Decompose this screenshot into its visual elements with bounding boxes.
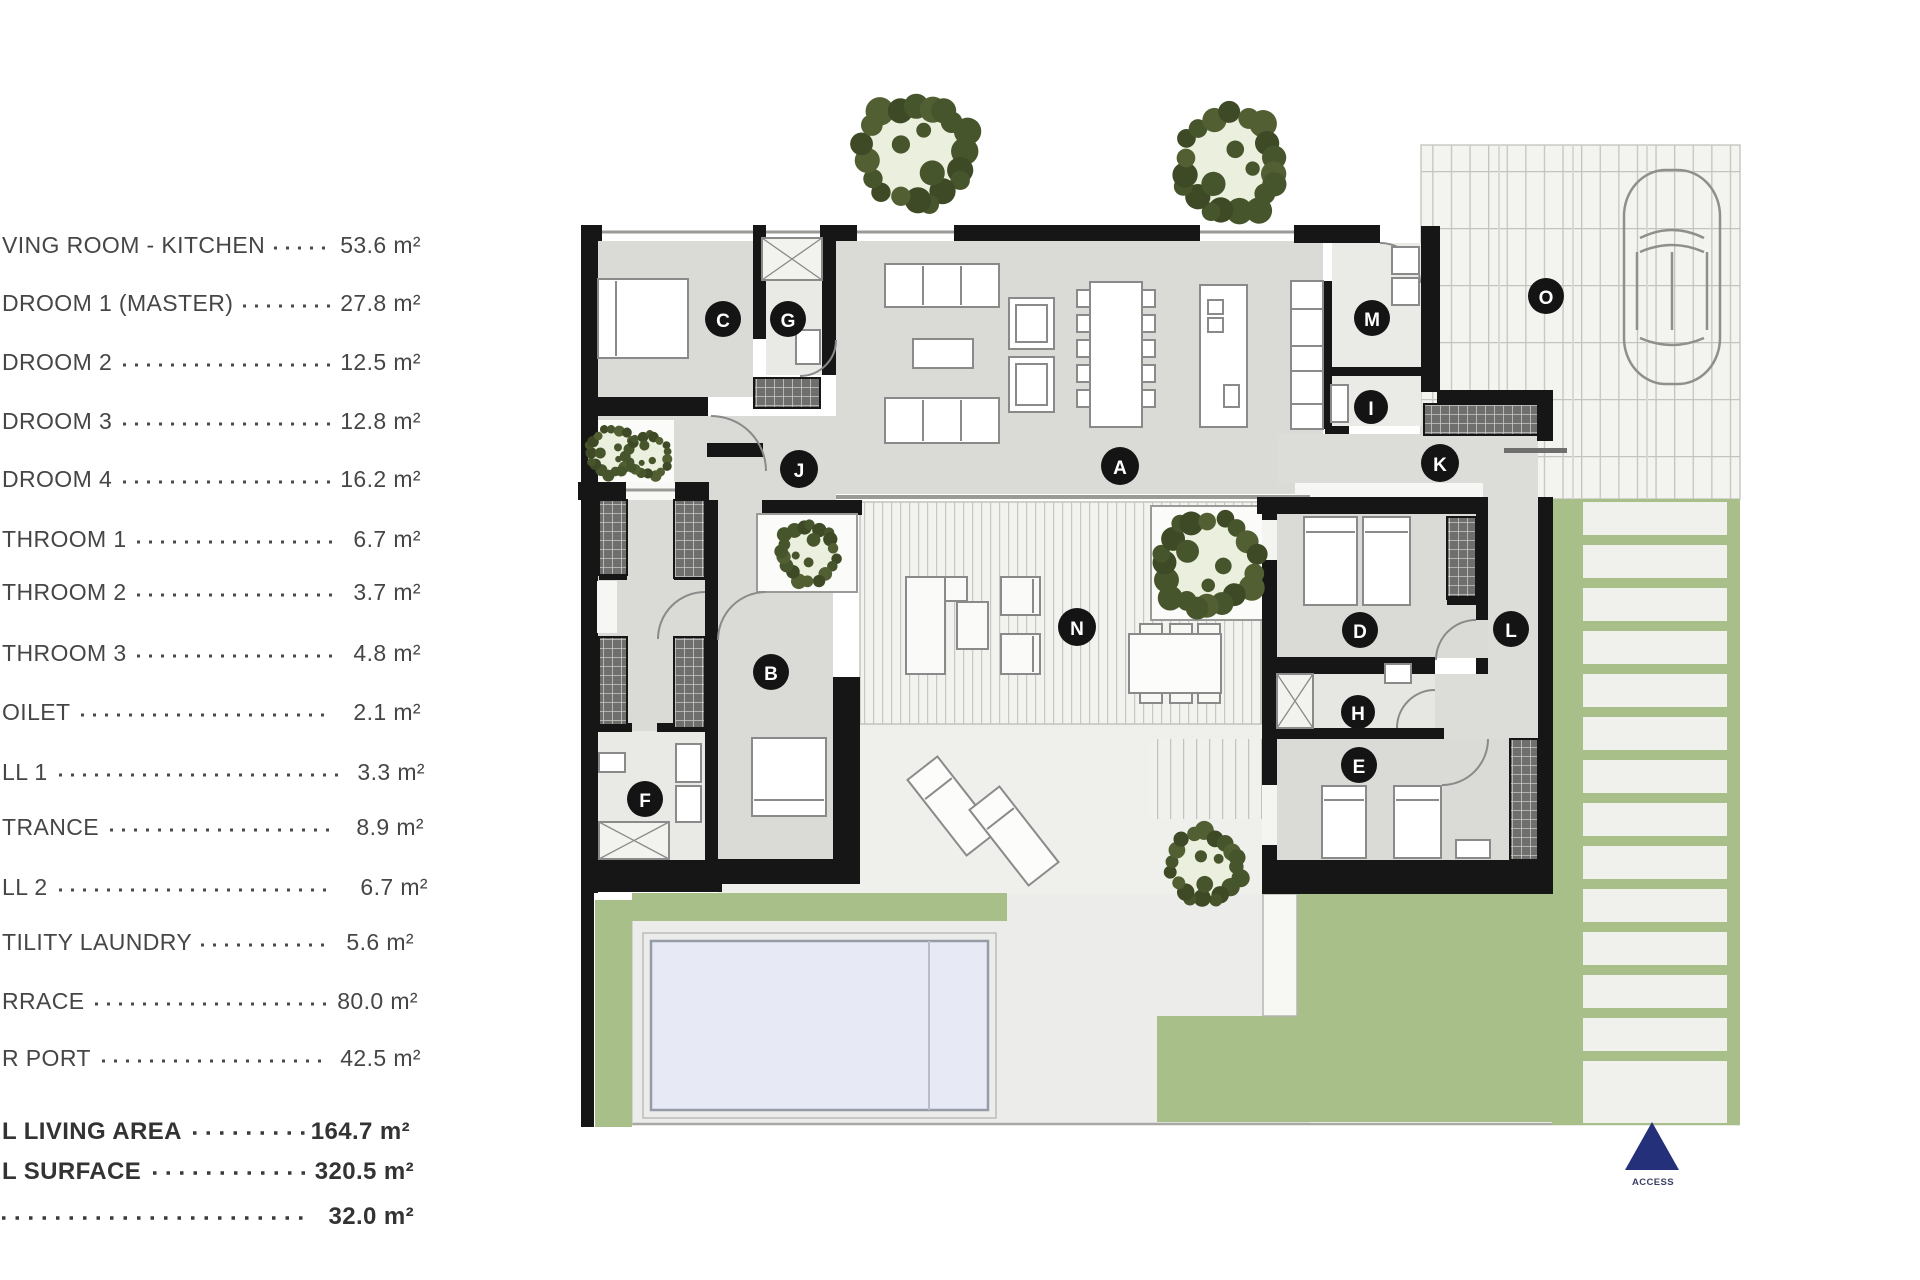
- svg-text:J: J: [794, 461, 805, 482]
- svg-text:27.8 m²: 27.8 m²: [340, 290, 421, 316]
- svg-text:TILITY LAUNDRY: TILITY LAUNDRY: [2, 929, 192, 955]
- svg-text:32.0 m²: 32.0 m²: [328, 1203, 414, 1230]
- svg-text:R PORT: R PORT: [2, 1045, 91, 1071]
- svg-text:DROOM 4: DROOM 4: [2, 466, 112, 492]
- svg-text:H: H: [1351, 704, 1365, 725]
- svg-text:DROOM 3: DROOM 3: [2, 408, 112, 434]
- svg-text:DROOM 2: DROOM 2: [2, 349, 112, 375]
- svg-text:L SURFACE: L SURFACE: [2, 1158, 141, 1185]
- svg-text:L LIVING AREA: L LIVING AREA: [2, 1118, 182, 1145]
- svg-text:8.9 m²: 8.9 m²: [356, 814, 424, 840]
- svg-text:DROOM 1 (MASTER): DROOM 1 (MASTER): [2, 290, 233, 316]
- svg-text:4.8 m²: 4.8 m²: [353, 640, 421, 666]
- svg-text:M: M: [1364, 310, 1380, 331]
- svg-text:O: O: [1539, 288, 1554, 309]
- svg-text:6.7 m²: 6.7 m²: [360, 874, 428, 900]
- svg-text:ACCESS: ACCESS: [1632, 1177, 1674, 1188]
- svg-text:K: K: [1433, 455, 1447, 476]
- svg-text:80.0 m²: 80.0 m²: [337, 988, 418, 1014]
- svg-text:5.6 m²: 5.6 m²: [346, 929, 414, 955]
- svg-text:164.7 m²: 164.7 m²: [311, 1118, 410, 1145]
- svg-text:6.7 m²: 6.7 m²: [353, 526, 421, 552]
- svg-text:TRANCE: TRANCE: [2, 814, 99, 840]
- svg-text:G: G: [781, 311, 796, 332]
- svg-text:E: E: [1353, 757, 1366, 778]
- svg-text:16.2 m²: 16.2 m²: [340, 466, 421, 492]
- svg-text:C: C: [716, 311, 730, 332]
- svg-text:42.5 m²: 42.5 m²: [340, 1045, 421, 1071]
- svg-text:2.1 m²: 2.1 m²: [353, 699, 421, 725]
- svg-text:3.3 m²: 3.3 m²: [357, 759, 425, 785]
- svg-text:VING ROOM - KITCHEN: VING ROOM - KITCHEN: [2, 232, 265, 258]
- svg-text:D: D: [1353, 622, 1367, 643]
- svg-text:A: A: [1113, 458, 1127, 479]
- svg-text:F: F: [639, 791, 651, 812]
- svg-text:N: N: [1070, 619, 1084, 640]
- svg-text:OILET: OILET: [2, 699, 70, 725]
- svg-text:LL 2: LL 2: [2, 874, 48, 900]
- svg-text:B: B: [764, 664, 778, 685]
- svg-text:320.5 m²: 320.5 m²: [315, 1158, 414, 1185]
- svg-text:THROOM 2: THROOM 2: [2, 579, 127, 605]
- svg-text:12.5 m²: 12.5 m²: [340, 349, 421, 375]
- svg-text:LL 1: LL 1: [2, 759, 48, 785]
- svg-text:I: I: [1368, 399, 1373, 420]
- svg-text:L: L: [1505, 621, 1517, 642]
- svg-text:RRACE: RRACE: [2, 988, 85, 1014]
- svg-text:3.7 m²: 3.7 m²: [353, 579, 421, 605]
- svg-text:THROOM 3: THROOM 3: [2, 640, 127, 666]
- svg-text:12.8 m²: 12.8 m²: [340, 408, 421, 434]
- svg-text:53.6 m²: 53.6 m²: [340, 232, 421, 258]
- svg-text:THROOM 1: THROOM 1: [2, 526, 127, 552]
